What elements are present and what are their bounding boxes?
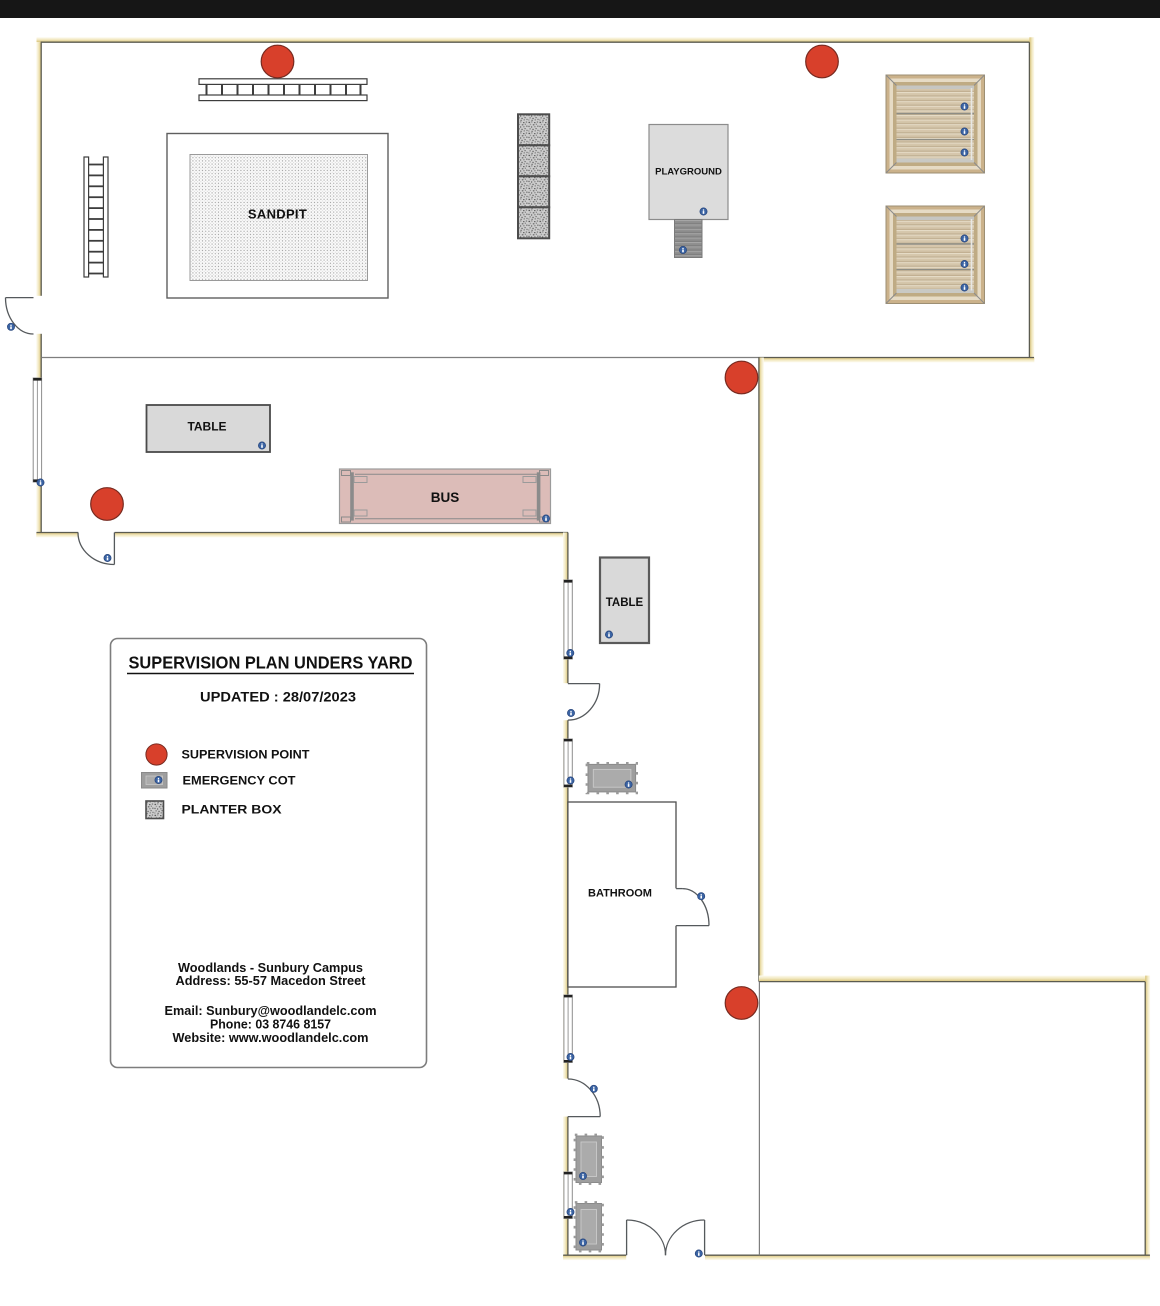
- svg-text:SUPERVISION PLAN UNDERS YARD: SUPERVISION PLAN UNDERS YARD: [129, 653, 413, 673]
- svg-text:EMERGENCY COT: EMERGENCY COT: [183, 776, 296, 788]
- svg-text:TABLE: TABLE: [606, 597, 644, 609]
- svg-text:UPDATED : 28/07/2023: UPDATED : 28/07/2023: [200, 690, 357, 705]
- svg-text:Email: Sunbury@woodlandelc.com: Email: Sunbury@woodlandelc.com: [165, 1004, 377, 1018]
- svg-text:Website: www.woodlandelc.com: Website: www.woodlandelc.com: [173, 1031, 369, 1045]
- svg-text:SANDPIT: SANDPIT: [248, 207, 307, 222]
- svg-text:BATHROOM: BATHROOM: [588, 888, 652, 900]
- svg-text:BUS: BUS: [431, 490, 460, 505]
- svg-text:PLAYGROUND: PLAYGROUND: [655, 167, 722, 178]
- svg-text:Woodlands - Sunbury Campus: Woodlands - Sunbury Campus: [178, 961, 363, 975]
- svg-text:Phone: 03 8746 8157: Phone: 03 8746 8157: [210, 1018, 331, 1032]
- svg-text:TABLE: TABLE: [187, 420, 226, 434]
- svg-text:Address: 55-57 Macedon Street: Address: 55-57 Macedon Street: [176, 974, 367, 988]
- svg-text:SUPERVISION POINT: SUPERVISION POINT: [182, 750, 310, 762]
- svg-text:PLANTER BOX: PLANTER BOX: [182, 805, 282, 817]
